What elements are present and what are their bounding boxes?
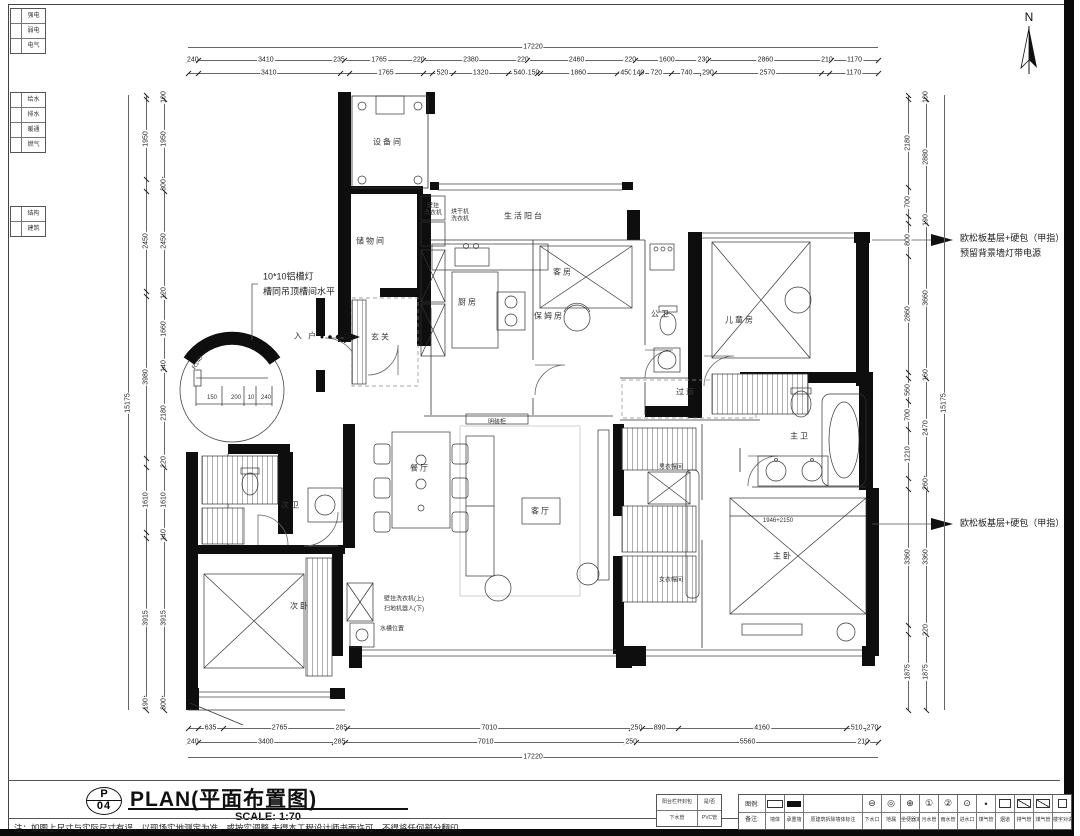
sheet-number: 04 — [87, 801, 121, 812]
legend-symbol — [785, 795, 803, 813]
legend-label: 污水管 — [920, 813, 938, 828]
strip-divider — [8, 780, 1060, 781]
sink-box — [350, 623, 374, 647]
sheet-note: 注：如图上尺寸与实际尺寸有误，以现场实地测定为准，或按实调整.未得本工程设计师书… — [14, 822, 467, 834]
bed-master — [730, 498, 866, 614]
legend-item: 原建筑拆除墙体标注 — [803, 795, 862, 829]
plan-text: 240 — [261, 395, 271, 401]
dim-label: 2180 — [905, 134, 912, 152]
legend-item: 排气管 — [1014, 795, 1033, 829]
dim-label: 3915 — [161, 609, 168, 627]
dim-label: 700 — [905, 195, 912, 209]
legend-label: 楼宇对讲 — [1053, 813, 1071, 828]
table-row: 暖通 — [11, 122, 45, 137]
room-label: 公卫 — [651, 309, 671, 320]
plan-text: 女衣帽间 — [659, 575, 683, 584]
dim-label: 2450 — [143, 232, 150, 250]
legend-label: 承重墙 — [785, 813, 803, 828]
room-label: 主卧 — [773, 551, 793, 562]
chair-nanny — [564, 303, 590, 331]
dim-label: 1860 — [569, 70, 587, 77]
note-value: PVC管 — [698, 811, 721, 826]
legend-table: 图例:备注:墙体承重墙原建筑拆除墙体标注⊖下水口◎地漏⊕坐便器定位①污水管②雨水… — [738, 794, 1072, 830]
discipline-table: 结构建筑 — [10, 206, 46, 237]
legend-item: 楼宇对讲 — [1052, 795, 1071, 829]
plan-text: 150 — [207, 395, 217, 401]
callout-leaders — [872, 234, 953, 530]
legend-symbol: ⊖ — [863, 795, 881, 813]
discipline-label: 排水 — [22, 108, 45, 122]
room-label: 次卧 — [290, 601, 310, 612]
bed-second — [204, 574, 304, 668]
discipline-label: 弱电 — [22, 24, 45, 38]
plan-text: 200 — [231, 395, 241, 401]
dim-label: 3915 — [143, 609, 150, 627]
room-label: 客房 — [553, 267, 573, 278]
dim-label: 1875 — [905, 663, 912, 681]
plan-text: 10 — [248, 395, 255, 401]
dim-label: 1875 — [923, 663, 930, 681]
plan-text: 壁挂洗衣机(上) — [384, 594, 424, 603]
legend-label: 煤气管 — [1034, 813, 1052, 828]
checkbox-cell — [11, 108, 22, 122]
table-row: 强电 — [11, 9, 45, 23]
table-row: 阳台栏杆封包是/否 — [657, 795, 721, 810]
legend-item: 煤气管 — [1033, 795, 1052, 829]
sw-rect-diag-icon — [1017, 799, 1031, 808]
dim-label: 1170 — [845, 70, 862, 77]
legend-symbol: ⊕ — [901, 795, 919, 813]
table-row: 结构 — [11, 207, 45, 221]
north-arrow-icon — [1021, 26, 1037, 74]
legend-prefix: 图例:备注: — [739, 795, 765, 829]
dim-label: 2180 — [161, 405, 168, 423]
legend-symbol — [804, 795, 862, 813]
dim-label: 800 — [905, 233, 912, 247]
dim-label: 1765 — [370, 57, 388, 64]
north-label: N — [1025, 10, 1034, 24]
checkbox-cell — [11, 123, 22, 137]
dim-label: 740 — [680, 70, 694, 77]
discipline-table: 给水排水暖通燃气 — [10, 92, 46, 153]
legend-symbol — [1053, 795, 1071, 813]
note-key: 阳台栏杆封包 — [657, 795, 698, 810]
dim-label: 3660 — [923, 289, 930, 307]
legend-label: 原建筑拆除墙体标注 — [804, 813, 862, 828]
table-row: 排水 — [11, 107, 45, 122]
dim-total: 17220 — [522, 44, 543, 51]
dim-label: 2765 — [271, 725, 289, 732]
legend-item: ⊕坐便器定位 — [900, 795, 919, 829]
dim-label: 2460 — [568, 57, 586, 64]
room-label: 生活阳台 — [504, 211, 544, 222]
legend-item: ⊙进水口 — [957, 795, 976, 829]
legend-symbol: ◎ — [882, 795, 900, 813]
plan-text: 水槽位置 — [380, 624, 404, 633]
note-value: 是/否 — [698, 795, 721, 810]
legend-item: ①污水管 — [919, 795, 938, 829]
legend-symbol — [766, 795, 784, 813]
sink-public — [654, 348, 680, 372]
sw-rect-icon — [999, 799, 1011, 808]
checkbox-cell — [11, 207, 22, 221]
room-label: 厨房 — [458, 297, 478, 308]
finish-callout: 欧松板基层+硬包（甲指） — [960, 516, 1064, 531]
shower — [308, 488, 342, 522]
bed-kids — [712, 242, 810, 358]
dim-label: 2860 — [757, 57, 775, 64]
plan-text: 槽同吊顶槽间水平 — [263, 285, 335, 298]
room-label: 过道 — [676, 387, 696, 398]
note-key: 下水管 — [657, 811, 698, 826]
dim-label: 1660 — [161, 321, 168, 339]
room-label: 玄关 — [371, 332, 391, 343]
dim-label: 510 — [850, 725, 864, 732]
discipline-label: 暖通 — [22, 123, 45, 137]
dim-label: 2470 — [923, 420, 930, 438]
legend-label: 墙体 — [766, 813, 784, 828]
dim-label: 720 — [649, 70, 663, 77]
legend-label: 进水口 — [958, 813, 976, 828]
dim-line — [188, 60, 878, 61]
checkbox-cell — [11, 93, 22, 107]
washer — [650, 244, 674, 270]
dim-label: 3400 — [257, 739, 275, 746]
dim-label: 4160 — [753, 725, 771, 732]
room-label: 储物间 — [356, 236, 386, 247]
cabinet-x — [347, 583, 373, 621]
dining-table — [374, 432, 468, 532]
title-underline — [128, 808, 408, 810]
legend-title: 图例: — [739, 795, 765, 813]
legend-note-title: 备注: — [739, 813, 765, 828]
legend-item: ⊖下水口 — [862, 795, 881, 829]
sw-rect-diag-icon — [1036, 799, 1050, 808]
dim-label: 560 — [905, 383, 912, 397]
legend-label: 排气管 — [1015, 813, 1033, 828]
table-row: 燃气 — [11, 137, 45, 152]
cabinet-x — [648, 472, 690, 504]
discipline-label: 给水 — [22, 93, 45, 107]
dim-label: 1320 — [472, 70, 490, 77]
dim-label: 1610 — [161, 491, 168, 509]
room-label: 入 户 — [294, 331, 318, 342]
dim-label: 7010 — [481, 725, 499, 732]
finish-callout: 欧松板基层+硬包（甲指） 预留背景墙灯带电源 — [960, 231, 1064, 262]
room-label: 设备间 — [373, 137, 403, 148]
dim-label: 3410 — [260, 70, 278, 77]
dim-label: 2880 — [923, 149, 930, 167]
table-row: 建筑 — [11, 221, 45, 236]
legend-label: 烟道 — [996, 813, 1014, 828]
dim-label: 635 — [204, 725, 218, 732]
legend-symbol: ⊙ — [958, 795, 976, 813]
sw-wall-outline-icon — [767, 800, 783, 808]
dim-total: 15175 — [125, 392, 132, 413]
plan-text: 男衣帽间 — [659, 462, 683, 471]
dim-label: 1610 — [143, 491, 150, 509]
dim-label: 5560 — [739, 739, 757, 746]
dim-label: 1210 — [905, 445, 912, 463]
legend-item: 烟道 — [995, 795, 1014, 829]
furniture-layer — [202, 96, 866, 676]
plan-text: 明装柜 — [488, 417, 506, 426]
discipline-label: 燃气 — [22, 138, 45, 152]
checkbox-cell — [11, 9, 22, 23]
dim-label: 3360 — [923, 548, 930, 566]
discipline-label: 电气 — [22, 39, 45, 53]
sheet-number-badge: P 04 — [86, 787, 122, 815]
discipline-table: 强电弱电电气 — [10, 8, 46, 54]
room-label: 次卫 — [281, 500, 301, 511]
table-row: 电气 — [11, 38, 45, 53]
room-label: 保姆房 — [534, 311, 564, 322]
dim-label: 1950 — [143, 130, 150, 148]
legend-label: 下水口 — [863, 813, 881, 828]
legend-label: 煤气管 — [977, 813, 995, 828]
dim-label: 2860 — [905, 305, 912, 323]
table-row: 给水 — [11, 93, 45, 107]
vanity-master — [758, 456, 828, 486]
dim-label: 1600 — [658, 57, 676, 64]
dim-total: 15175 — [941, 392, 948, 413]
dim-total: 17220 — [522, 754, 543, 761]
legend-item: ◎地漏 — [881, 795, 900, 829]
kitchen-counter — [432, 244, 548, 349]
dim-label: 3410 — [257, 57, 275, 64]
dim-line — [926, 95, 927, 710]
dim-label: 1765 — [377, 70, 395, 77]
plan-text: 洗衣机 — [424, 208, 442, 217]
dim-line — [188, 728, 878, 729]
dim-label: 1950 — [161, 130, 168, 148]
legend-symbol — [1034, 795, 1052, 813]
legend-label: 坐便器定位 — [901, 813, 919, 828]
checkbox-cell — [11, 138, 22, 152]
dim-line — [188, 742, 878, 743]
legend-symbol — [1015, 795, 1033, 813]
room-label: 客厅 — [531, 506, 551, 517]
plan-text: 10*10铝槽灯 — [263, 270, 314, 283]
legend-symbol: ① — [920, 795, 938, 813]
dim-label: 520 — [436, 70, 450, 77]
checkbox-cell — [11, 222, 22, 236]
plan-text: 扫地机器人(下) — [384, 604, 424, 613]
plan-text: 1946+2150 — [763, 518, 793, 524]
stove — [497, 292, 525, 330]
dim-label: 7010 — [477, 739, 495, 746]
drawing-sheet: N 设备间储物间生活阳台厨房玄关客房保姆房公卫儿童房过道次卫餐厅客厅明装柜男衣帽… — [0, 0, 1080, 836]
room-label: 餐厅 — [410, 463, 430, 474]
checkbox-cell — [11, 24, 22, 38]
table-row: 弱电 — [11, 23, 45, 38]
legend-label: 雨水管 — [939, 813, 957, 828]
legend-symbol — [996, 795, 1014, 813]
legend-item: 承重墙 — [784, 795, 803, 829]
legend-item: ②雨水管 — [938, 795, 957, 829]
dim-label: 3360 — [905, 548, 912, 566]
discipline-label: 结构 — [22, 207, 45, 221]
dim-label: 2450 — [161, 232, 168, 250]
dim-label: 2570 — [759, 70, 777, 77]
dim-label: 700 — [905, 408, 912, 422]
dim-label: 1170 — [846, 57, 863, 64]
table-row: 下水管PVC管 — [657, 810, 721, 826]
discipline-label: 建筑 — [22, 222, 45, 236]
dim-label: 3980 — [143, 368, 150, 386]
legend-symbol: • — [977, 795, 995, 813]
legend-symbol: ② — [939, 795, 957, 813]
discipline-label: 强电 — [22, 9, 45, 23]
dim-label: 540 — [512, 70, 526, 77]
dim-label: 2380 — [462, 57, 480, 64]
checkbox-cell — [11, 39, 22, 53]
sw-square-dot-icon — [1058, 799, 1067, 808]
plan-text: 洗衣机 — [451, 214, 469, 223]
room-label: 儿童房 — [725, 315, 755, 326]
dim-label: 890 — [653, 725, 667, 732]
sofa — [466, 436, 494, 576]
legend-label: 地漏 — [882, 813, 900, 828]
balcony-note-table: 阳台栏杆封包是/否下水管PVC管 — [656, 794, 722, 827]
room-label: 主卫 — [790, 431, 810, 442]
legend-item: 墙体 — [765, 795, 784, 829]
windows-layer — [199, 184, 862, 697]
sw-wall-filled-icon — [787, 801, 801, 807]
legend-item: •煤气管 — [976, 795, 995, 829]
